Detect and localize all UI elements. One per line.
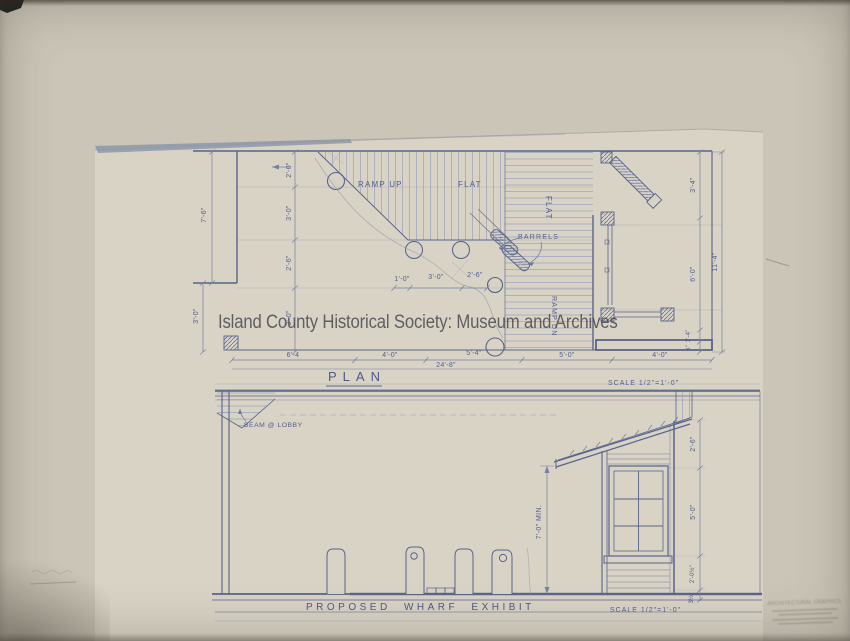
dim-middle-2: 2'-6" xyxy=(467,272,483,279)
dim-right-inner-1: 6'-0" xyxy=(690,266,697,282)
dim-middle-0: 1'-0" xyxy=(394,276,410,283)
stamp-illegible-line xyxy=(778,621,832,625)
dim-left-outer-0: 7'-6" xyxy=(201,207,208,223)
dim-bottom-0: 6'-4 xyxy=(287,352,300,359)
plan-scale-note: SCALE 1/2"=1'-0" xyxy=(608,380,679,387)
dim-right-inner-0: 3'-4" xyxy=(690,177,697,193)
beam-lobby-label: BEAM @ LOBBY xyxy=(244,422,303,429)
elev-dim-1: 5'-0" xyxy=(690,504,697,520)
dim-left-inner-2: 2'-6" xyxy=(286,255,293,271)
flat-deck-label: FLAT xyxy=(544,196,553,220)
elev-dim-2: 2'-0½" xyxy=(689,565,696,583)
dim-bottom-2: 5'-4" xyxy=(466,350,482,357)
watermark-text: Island County Historical Society: Museum… xyxy=(218,312,618,334)
elev-dim-0: 2'-6" xyxy=(690,436,697,452)
dim-left-inner-0: 2'-0" xyxy=(286,162,293,178)
barrels-label: BARRELS xyxy=(518,234,559,241)
stamp-illegible-line xyxy=(778,612,832,616)
dim-left-inner-1: 3'-0" xyxy=(286,205,293,221)
elevation-title: PROPOSED WHARF EXHIBIT xyxy=(306,602,535,613)
dim-right-outer: 11'-4" xyxy=(712,252,719,271)
ramp-up-label: RAMP UP xyxy=(358,180,403,189)
plan-title: PLAN xyxy=(328,369,386,384)
min-height-label: 7'-0" MIN. xyxy=(536,505,543,540)
elev-dim-3: 3½" xyxy=(688,592,695,603)
dim-bottom-3: 5'-0" xyxy=(559,352,575,359)
stamp-illegible-line xyxy=(772,616,838,620)
dim-left-outer-1: 3'-0" xyxy=(193,308,200,324)
edge-pencil-mark xyxy=(766,259,789,266)
scan-bottom-edge-shadow xyxy=(0,633,850,641)
scanned-blueprint-photo: RAMP UP FLAT FLAT BARRELS RAMP DN 7'-6" … xyxy=(0,0,850,641)
dim-right-inner-2: 1'-4" xyxy=(686,330,692,343)
dim-bottom-overall: 24'-8" xyxy=(436,362,456,369)
dim-bottom-4: 4'-0" xyxy=(652,352,668,359)
dim-right-inner-3: 6" xyxy=(686,345,692,351)
elevation-scale-note: SCALE 1/2"=1'-0" xyxy=(610,607,681,614)
dim-bottom-1: 4'-0" xyxy=(382,352,398,359)
stamp-illegible-line xyxy=(772,607,838,611)
flat-upper-label: FLAT xyxy=(458,180,482,189)
dim-middle-1: 3'-0" xyxy=(428,274,444,281)
scan-top-edge-shadow xyxy=(0,0,850,6)
scan-corner-artifacts xyxy=(0,0,110,641)
archive-stamp: ARCHITECTURAL GRAPHICS xyxy=(764,599,847,628)
